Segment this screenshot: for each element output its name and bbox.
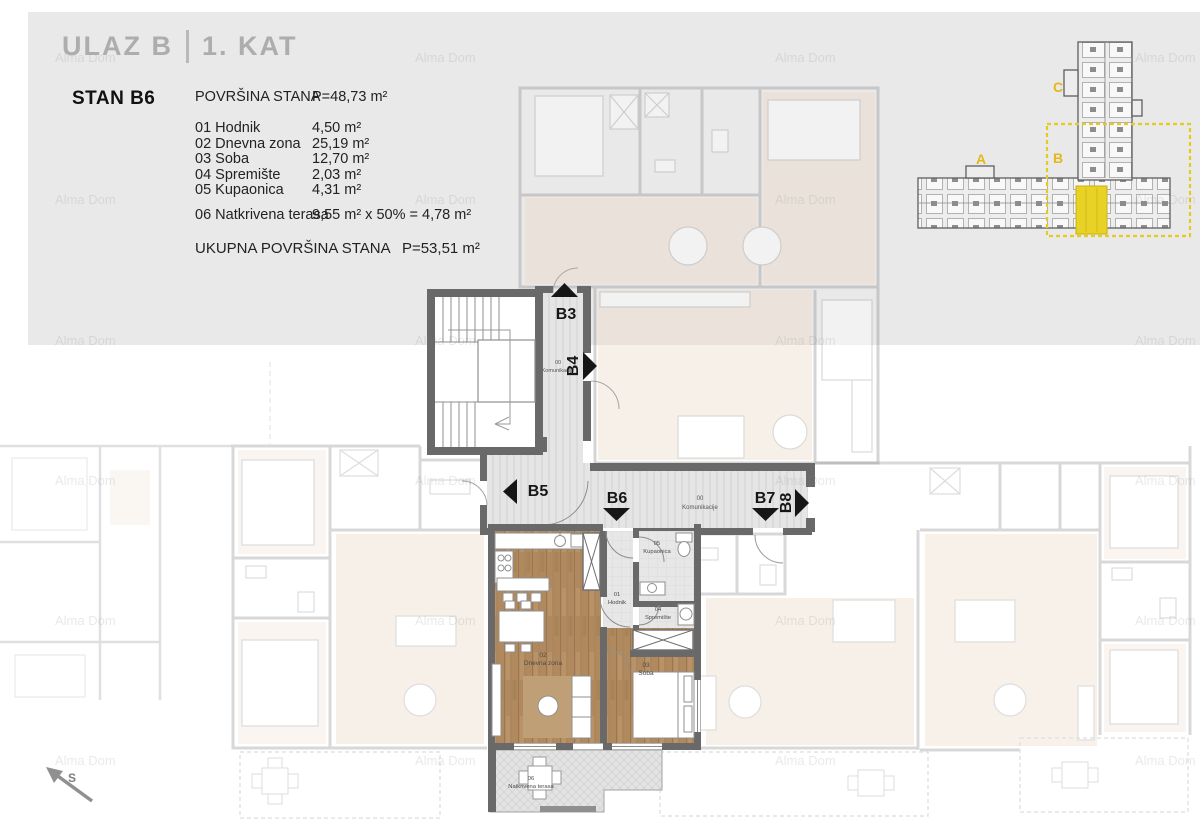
room-area: 4,50 m² xyxy=(312,120,361,136)
overview-label-a: A xyxy=(976,151,986,167)
apartment-area-line: POVRŠINA STANA P=48,73 m² xyxy=(195,89,615,105)
faded-units-far-left xyxy=(0,362,270,700)
b3-label: B3 xyxy=(556,306,577,323)
terrace-calc: 9,55 m² x 50% = 4,78 m² xyxy=(312,207,471,223)
total-area-line: UKUPNA POVRŠINA STANA P=53,51 m² xyxy=(195,240,715,257)
room-list: 01 Hodnik 4,50 m² 02 Dnevna zona 25,19 m… xyxy=(195,120,615,198)
corridor-label-num: 00 xyxy=(555,360,561,366)
room-num: 02 xyxy=(195,136,211,152)
hall-label-num: 01 xyxy=(614,592,620,598)
bedroom-label-name: Soba xyxy=(638,670,654,677)
title-divider xyxy=(186,30,189,63)
overview-label-c: C xyxy=(1053,79,1063,95)
room-num: 05 xyxy=(195,182,211,198)
stairwell xyxy=(427,289,543,455)
bath-label-name: Kupaonica xyxy=(643,549,671,555)
storage-label-name: Spremište xyxy=(645,615,671,621)
page-title: ULAZ B 1. KAT xyxy=(62,30,298,63)
room-num: 04 xyxy=(195,167,211,183)
room-area: 4,31 m² xyxy=(312,182,361,198)
apartment-b6: 02 Dnevna zona 01 Hodnik 05 Kupaonica 04… xyxy=(488,524,701,812)
room-name: Spremište xyxy=(215,167,280,183)
room-area: 25,19 m² xyxy=(312,136,369,152)
terrace-line: 06 Natkrivena terasa 9,55 m² x 50% = 4,7… xyxy=(195,207,715,223)
b4-label: B4 xyxy=(565,356,582,377)
unit-b4: B4 xyxy=(565,352,597,380)
room-area: 12,70 m² xyxy=(312,151,369,167)
room-num: 01 xyxy=(195,120,211,136)
total-label: UKUPNA POVRŠINA STANA xyxy=(195,240,390,257)
room-name: Kupaonica xyxy=(215,182,284,198)
room-row: 05 Kupaonica 4,31 m² xyxy=(195,182,615,198)
b5-label: B5 xyxy=(528,483,549,500)
living-label-num: 02 xyxy=(539,652,547,659)
room-area: 2,03 m² xyxy=(312,167,361,183)
bath-label-num: 05 xyxy=(654,541,660,547)
storage-label-num: 04 xyxy=(655,607,662,613)
overview-label-b: B xyxy=(1053,150,1063,166)
title-floor: 1. KAT xyxy=(202,31,298,62)
b3-entry-arrow-up xyxy=(551,283,578,297)
b8-label: B8 xyxy=(778,493,795,514)
area-label: POVRŠINA STANA xyxy=(195,89,320,105)
b7-label: B7 xyxy=(755,490,776,507)
overview-map: A B C xyxy=(918,42,1190,236)
overview-highlighted-unit xyxy=(1076,186,1107,234)
room-name: Soba xyxy=(215,151,249,167)
terrace-num: 06 xyxy=(195,207,211,223)
north-arrow-icon xyxy=(46,767,63,783)
room-row: 04 Spremište 2,03 m² xyxy=(195,167,615,183)
floorplan-sheet: 00 Komunikacije 00 Komunikacije xyxy=(0,0,1200,831)
corridor-label2-name: Komunikacije xyxy=(682,505,718,511)
compass: S xyxy=(46,767,92,801)
apartment-name: STAN B6 xyxy=(72,88,155,110)
hall-label-name: Hodnik xyxy=(608,600,626,606)
room-name: Hodnik xyxy=(215,120,260,136)
b6-label: B6 xyxy=(607,490,628,507)
room-row: 03 Soba 12,70 m² xyxy=(195,151,615,167)
corridor-label2-num: 00 xyxy=(697,496,704,502)
bedroom-label-num: 03 xyxy=(642,662,650,669)
room-row: 01 Hodnik 4,50 m² xyxy=(195,120,615,136)
total-value: P=53,51 m² xyxy=(402,240,480,257)
living-label-name: Dnevna zona xyxy=(524,660,563,667)
room-num: 03 xyxy=(195,151,211,167)
terrace-label-name: Natkrivena terasa xyxy=(508,784,554,790)
room-name: Dnevna zona xyxy=(215,136,300,152)
faded-unit-b5 xyxy=(233,446,487,818)
compass-label: S xyxy=(68,771,76,785)
area-value: P=48,73 m² xyxy=(312,89,387,105)
title-entrance: ULAZ B xyxy=(62,31,173,62)
terrace-label-num: 06 xyxy=(528,776,534,782)
room-row: 02 Dnevna zona 25,19 m² xyxy=(195,136,615,152)
